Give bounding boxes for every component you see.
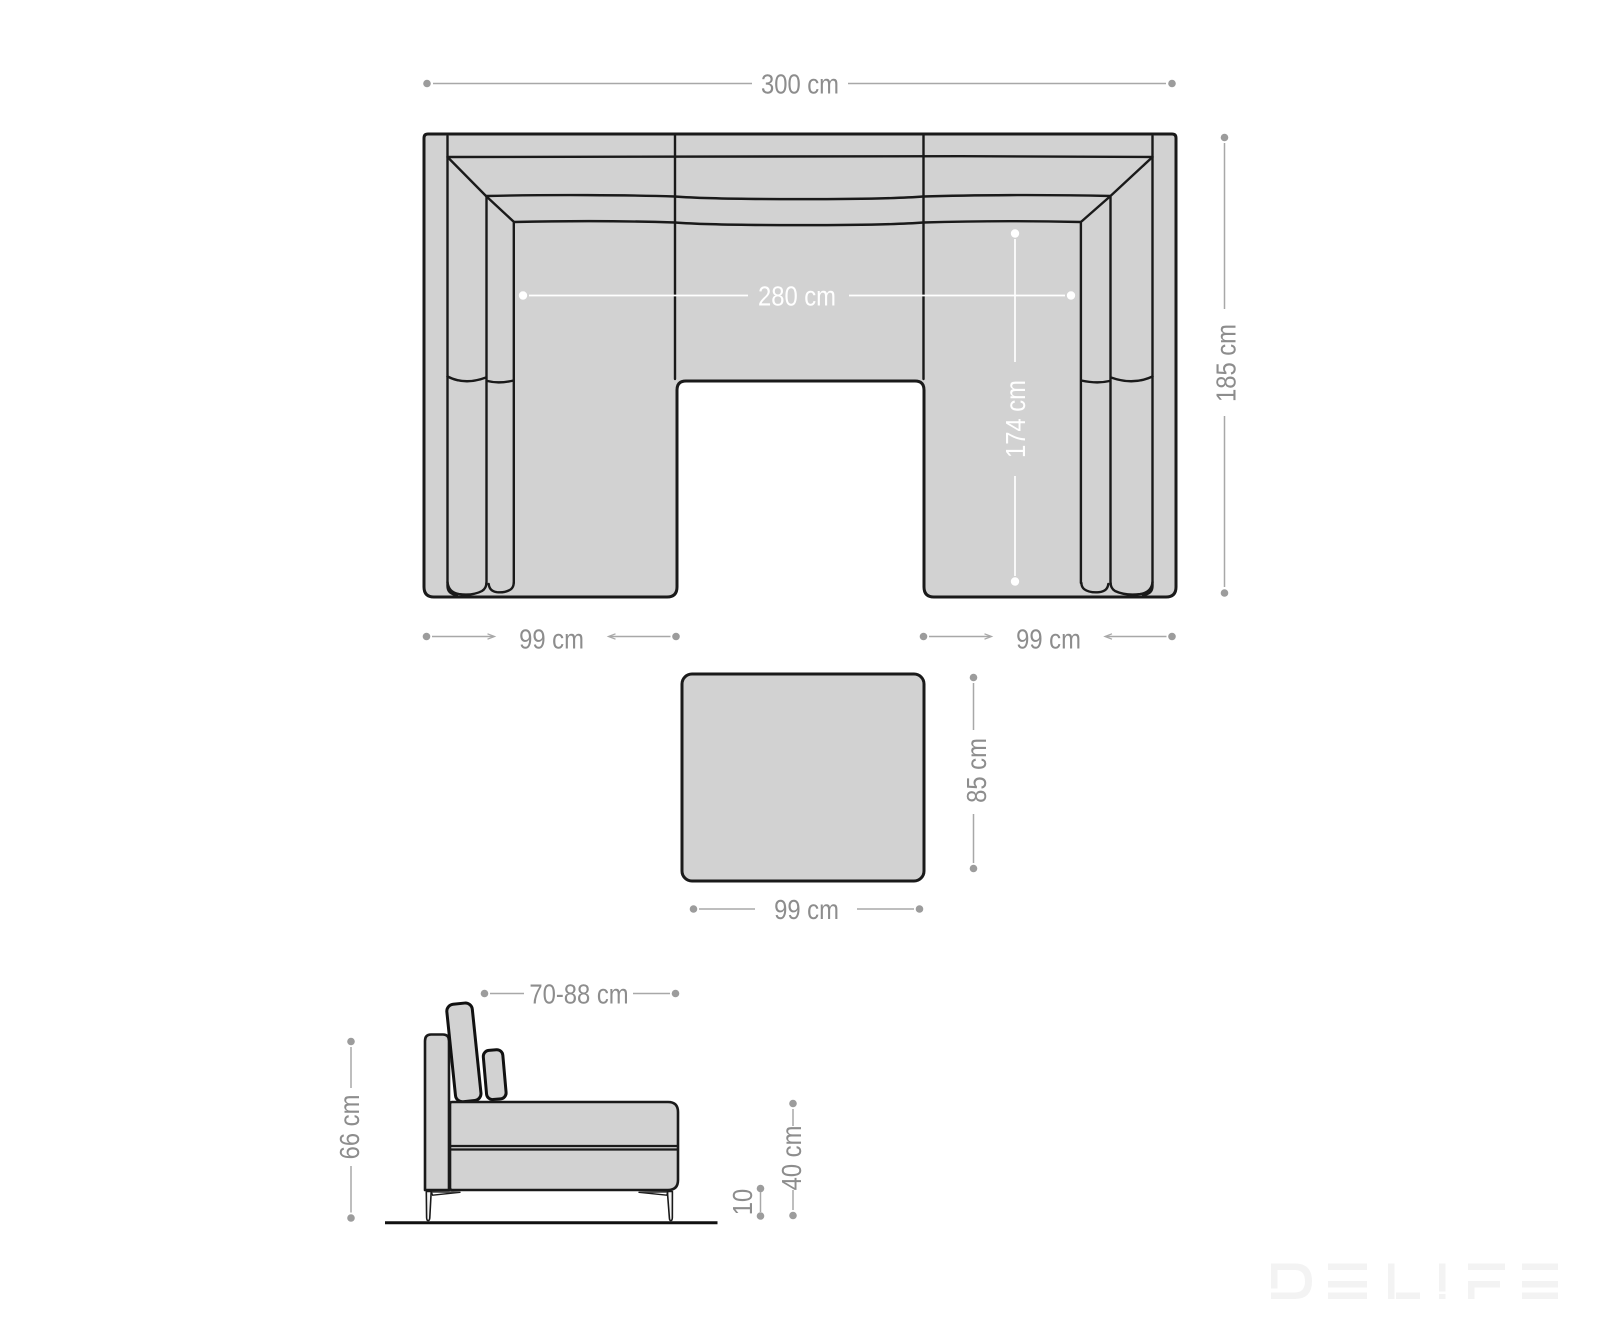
svg-text:85 cm: 85 cm — [960, 738, 992, 803]
svg-text:66 cm: 66 cm — [333, 1095, 365, 1160]
svg-text:99 cm: 99 cm — [519, 623, 584, 655]
svg-text:185 cm: 185 cm — [1210, 324, 1242, 402]
svg-text:10: 10 — [726, 1189, 758, 1215]
svg-text:99 cm: 99 cm — [1016, 623, 1081, 655]
svg-text:280 cm: 280 cm — [758, 280, 836, 312]
svg-text:174 cm: 174 cm — [999, 380, 1031, 458]
svg-text:40 cm: 40 cm — [775, 1126, 807, 1191]
svg-text:70-88 cm: 70-88 cm — [529, 978, 628, 1010]
svg-text:300 cm: 300 cm — [761, 68, 839, 100]
svg-text:99 cm: 99 cm — [774, 893, 839, 925]
